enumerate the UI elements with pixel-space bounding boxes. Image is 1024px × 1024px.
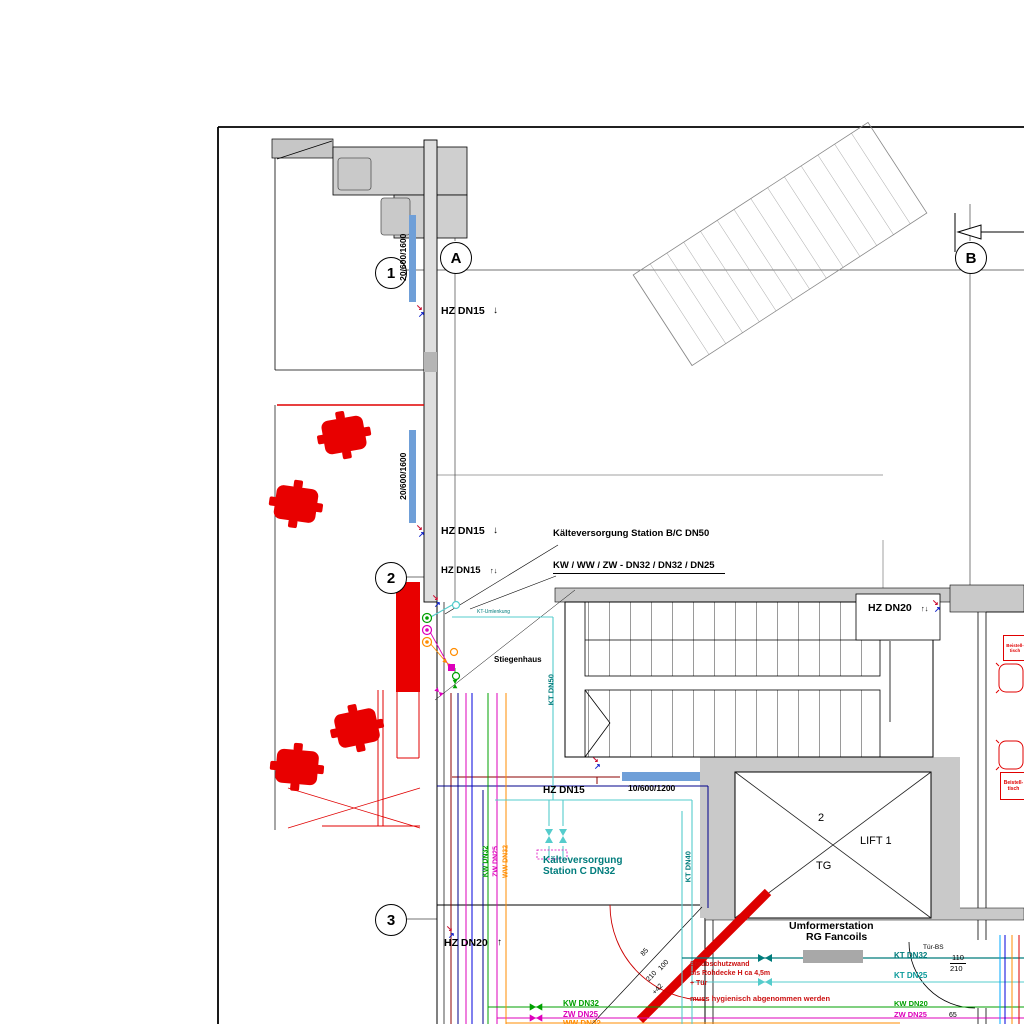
kw-ww-zw-label: KW / WW / ZW - DN32 / DN32 / DN25 [553,561,725,574]
window-size-label-3: 10/600/1200 [628,784,675,793]
staubschutz-note-line2: bis Rohdecke H ca 4,5m [690,970,770,977]
ww-dn32-valve-label: WW DN32 [563,1020,601,1024]
floor-plan-linework [0,0,1024,1024]
station-c-label-line1: Kälteversorgung [543,856,622,866]
hz-dn15-label-station-c: HZ DN15 [543,786,585,796]
beistelltisch-box-1: Beistell- tisch [1003,635,1024,661]
floor-plan-sheet: 1 2 3 A B HZ DN15 ↓ HZ DN15 ↓ HZ DN15 ↑↓… [0,0,1024,1024]
flow-arrow-pair-icon: ↘↗ [592,756,604,772]
flow-arrow-pair-icon: ↘↗ [932,599,944,615]
lift-number-label: 2 [818,813,824,824]
grid-marker-B-label: B [966,250,977,267]
beistelltisch-box-2: Beistell- tisch [1000,772,1024,800]
ww-dn32-riser-label: WW DN32 [503,836,510,888]
hz-dn15-label-riser: HZ DN15 [441,566,481,576]
zw-dn25-label-right: ZW DN25 [894,1011,927,1019]
beistelltisch-1-line2: tisch [1004,648,1024,653]
kt-dn40-label: KT DN40 [684,845,692,889]
kw-dn32-riser-label: KW DN32 [483,836,490,888]
grid-marker-3-label: 3 [387,912,395,929]
station-c-label-line2: Station C DN32 [543,867,615,877]
grid-marker-1-label: 1 [387,265,395,282]
grid-marker-2: 2 [375,562,407,594]
flow-arrow-pair-icon: ↘↗ [446,925,458,941]
equipment-block [803,950,863,963]
grid-marker-3: 3 [375,904,407,936]
window-size-label-2: 20/600/1600 [399,431,408,521]
lift-name-label: LIFT 1 [860,836,892,847]
door-width-dim: 110 [950,954,966,964]
kaelteversorgung-bc-label: Kälteversorgung Station B/C DN50 [553,529,709,539]
grid-marker-2-label: 2 [387,570,395,587]
hygiene-note: muss hygienisch abgenommen werden [690,995,830,1003]
flow-arrow-pair-icon: ↘↗ [416,304,428,320]
umformerstation-label-line1: Umformerstation [789,921,874,932]
flow-updown-icon: ↑↓ [921,605,929,613]
stairs-diagonal [633,122,927,365]
window-size-label-1: 20/600/1600 [399,212,408,302]
kt-dn25-label: KT DN25 [894,972,927,980]
flow-down-icon: ↓ [493,526,498,536]
door-height-dim: 210 [950,965,963,973]
kw-dn32-valve-label: KW DN32 [563,1000,599,1008]
umformerstation-label-line2: RG Fancoils [806,932,867,943]
flow-up-icon: ↑ [497,938,502,948]
kt-riser-note: KT-Umlenkung [477,610,510,615]
flow-arrow-pair-icon: ↘↗ [432,594,444,610]
hz-dn15-label-top: HZ DN15 [441,306,485,317]
zw-dn25-valve-label: ZW DN25 [563,1011,598,1019]
grid-marker-A: A [440,242,472,274]
grid-marker-A-label: A [451,250,462,267]
lift-shaft [700,757,960,918]
grid-marker-B: B [955,242,987,274]
kw-dn20-label: KW DN20 [894,1000,928,1008]
flow-down-icon: ↓ [493,306,498,316]
flow-arrow-pair-icon: ↘↗ [416,524,428,540]
dim-65: 65 [949,1012,957,1019]
hz-dn20-stair-label: HZ DN20 [868,603,912,614]
lift-tg-label: TG [816,861,831,872]
stiegenhaus-label: Stiegenhaus [494,656,542,664]
kt-dn32-label: KT DN32 [894,952,927,960]
hz-dn15-label-mid: HZ DN15 [441,526,485,537]
staubschutz-note-line1: Staubschutzwand [690,961,750,968]
kt-dn50-label: KT DN50 [547,668,555,712]
staubschutz-note-line3: + Tür [690,980,707,987]
flow-updown-icon: ↑↓ [490,567,498,575]
zw-dn25-riser-label: ZW DN25 [493,836,500,888]
beistelltisch-2-line2: tisch [1001,786,1024,792]
stair-main [565,594,940,757]
